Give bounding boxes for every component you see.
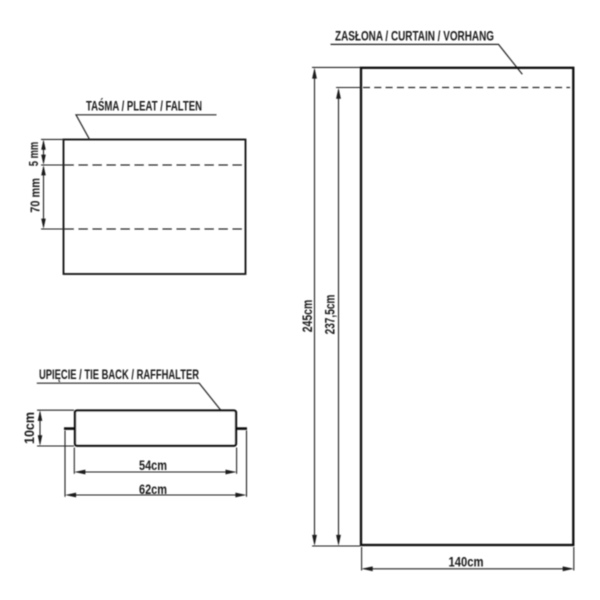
svg-text:62cm: 62cm <box>139 482 167 497</box>
svg-text:237,5cm: 237,5cm <box>323 295 338 335</box>
svg-text:245cm: 245cm <box>300 300 315 333</box>
svg-text:70 mm: 70 mm <box>27 178 42 213</box>
svg-text:140cm: 140cm <box>449 555 484 570</box>
svg-text:UPIĘCIE / TIE BACK / RAFFHALTE: UPIĘCIE / TIE BACK / RAFFHALTER <box>39 366 199 382</box>
svg-text:54cm: 54cm <box>139 458 167 473</box>
svg-text:10cm: 10cm <box>22 412 37 444</box>
svg-text:TAŚMA / PLEAT / FALTEN: TAŚMA / PLEAT / FALTEN <box>86 96 202 113</box>
svg-text:ZASŁONA / CURTAIN / VORHANG: ZASŁONA / CURTAIN / VORHANG <box>335 27 494 43</box>
svg-text:5 mm: 5 mm <box>26 142 41 167</box>
